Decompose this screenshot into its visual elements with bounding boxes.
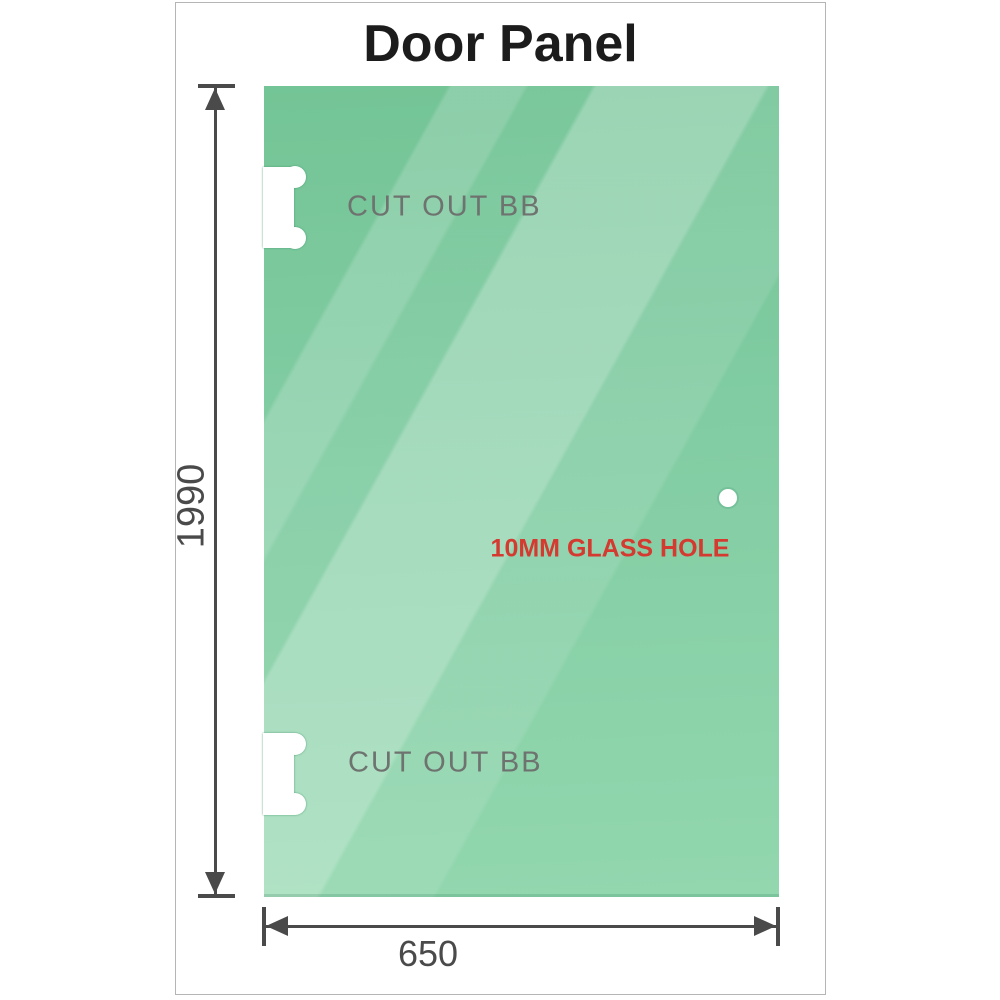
arrow-right-icon (754, 916, 776, 936)
cutout-top-label: CUT OUT BB (347, 191, 542, 224)
arrow-down-icon (205, 872, 225, 894)
page-title: Door Panel (175, 14, 826, 74)
hinge-cutout-top-bump-upper (284, 166, 306, 188)
width-dimension-line (264, 925, 779, 928)
height-dimension-cap-bottom (198, 894, 235, 898)
height-dimension-line (214, 86, 217, 897)
cutout-bottom-label: CUT OUT BB (348, 747, 543, 780)
diagram-canvas: Door Panel CUT OUT BB CUT OUT BB 10MM GL… (0, 0, 1000, 1000)
glass-hole (717, 487, 739, 509)
width-dimension-label: 650 (398, 933, 458, 975)
arrow-up-icon (205, 88, 225, 110)
hinge-cutout-top-notch (263, 167, 294, 248)
arrow-left-icon (266, 916, 288, 936)
hinge-cutout-bottom-bump-lower (284, 793, 306, 815)
height-dimension-label: 1990 (171, 464, 214, 549)
glass-hole-label: 10MM GLASS HOLE (491, 535, 730, 564)
hinge-cutout-bottom-bump-upper (284, 733, 306, 755)
door-panel-glass: CUT OUT BB CUT OUT BB 10MM GLASS HOLE (264, 86, 779, 897)
hinge-cutout-top-bump-lower (284, 227, 306, 249)
width-dimension-cap-right (776, 907, 780, 946)
hinge-cutout-bottom-notch (263, 733, 294, 815)
